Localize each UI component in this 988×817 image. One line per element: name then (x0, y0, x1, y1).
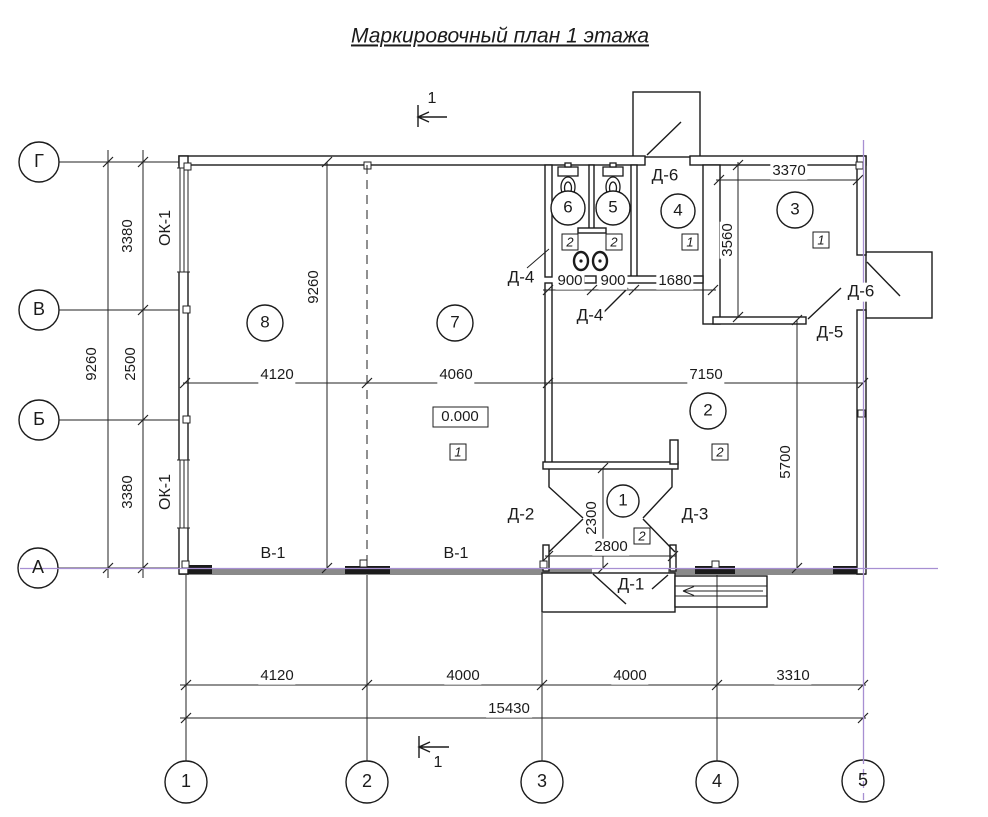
section-mark-label-top: 1 (428, 90, 437, 108)
room-number-5: 5 (608, 199, 617, 218)
door-leaves (549, 122, 900, 604)
dim-wc-1680: 1680 (656, 273, 693, 290)
floor-type-room7: 1 (450, 444, 467, 461)
wall-wc-front (584, 276, 596, 283)
drawing-title: Маркировочный план 1 этажа (351, 24, 649, 47)
dim-left-3380-top: 3380 (120, 217, 137, 254)
wall-stub (670, 440, 678, 464)
window-label-v1-right: В-1 (443, 545, 470, 563)
wall-top (179, 156, 645, 165)
axis-col-1: 1 (181, 772, 191, 792)
door-label-d6-right: Д-6 (847, 283, 876, 302)
axis-row-v: В (33, 300, 45, 320)
axis-row-b: Б (33, 410, 45, 430)
dim-bottom-3310: 3310 (774, 668, 811, 685)
dim-inner-7150: 7150 (687, 367, 724, 384)
dim-inner-4120: 4120 (258, 367, 295, 384)
section-mark-label-bottom: 1 (434, 754, 443, 772)
door-label-d3: Д-3 (681, 506, 710, 525)
porch-top (633, 92, 700, 157)
dim-inner-4060: 4060 (437, 367, 474, 384)
wall-right (857, 156, 866, 255)
floor-plan-sheet: Маркировочный план 1 этажаГВБА1234533802… (0, 0, 988, 817)
dim-bottom-15430: 15430 (486, 701, 532, 718)
dim-wc-900-right: 900 (598, 273, 627, 290)
dim-bottom-4000-right: 4000 (611, 668, 648, 685)
wall-right (857, 310, 866, 574)
dim-room2-5700: 5700 (778, 443, 795, 480)
wall-room3-bottom (713, 317, 806, 324)
section-mark-top (418, 105, 447, 127)
axis-col-2: 2 (362, 772, 372, 792)
door-label-d2: Д-2 (507, 506, 536, 525)
wall-tambour-top (543, 462, 678, 469)
wall-wc-left (545, 165, 552, 277)
dim-left-2500: 2500 (123, 345, 140, 382)
window-label-ok1-top: ОК-1 (157, 209, 175, 247)
door-label-d5: Д-5 (816, 324, 845, 343)
dim-left-9260: 9260 (84, 345, 101, 382)
wall-hall-divider (545, 283, 552, 465)
floor-type-room3: 1 (813, 232, 830, 249)
wall-room4-room3 (703, 165, 720, 324)
axis-row-g: Г (34, 152, 44, 172)
dimension-ticks (103, 157, 868, 723)
room-number-2: 2 (703, 402, 712, 421)
window-ok1-top (177, 168, 190, 272)
dim-bottom-4120: 4120 (258, 668, 295, 685)
level-mark: 0.000 (439, 409, 481, 426)
dim-room3-3370: 3370 (770, 163, 807, 180)
door-label-d4-left: Д-4 (507, 269, 536, 288)
wall-wc-partition (589, 165, 594, 231)
floor-type-wc6: 2 (562, 234, 579, 251)
porch-right (866, 252, 932, 318)
floor-type-room2: 2 (712, 444, 729, 461)
room-number-4: 4 (673, 202, 682, 221)
floor-drain-icon (574, 252, 607, 270)
room-number-3: 3 (790, 201, 799, 220)
floor-plan-canvas (0, 0, 988, 817)
wall-wc-room4 (631, 165, 637, 277)
room-number-6: 6 (563, 199, 572, 218)
dim-bottom-4000-left: 4000 (444, 668, 481, 685)
dim-inner-9260: 9260 (306, 268, 323, 305)
room-number-8: 8 (260, 314, 269, 333)
axis-col-4: 4 (712, 772, 722, 792)
floor-type-room4: 1 (682, 234, 699, 251)
door-label-d4-bottom: Д-4 (576, 307, 605, 326)
porch-entrance (542, 573, 675, 612)
door-label-d1: Д-1 (617, 576, 646, 595)
dim-tambour-2800: 2800 (592, 539, 629, 556)
axis-col-3: 3 (537, 772, 547, 792)
dim-wc-900-left: 900 (555, 273, 584, 290)
door-label-d6-top: Д-6 (651, 167, 680, 186)
axis-row-a: А (32, 558, 44, 578)
window-label-v1-left: В-1 (260, 545, 287, 563)
dim-left-3380-bottom: 3380 (120, 473, 137, 510)
dim-room3-3560: 3560 (720, 221, 737, 258)
room-number-1: 1 (618, 492, 627, 511)
axis-col-5: 5 (858, 771, 868, 791)
wall-wc-partition-cap (578, 228, 606, 233)
floor-type-wc5: 2 (606, 234, 623, 251)
window-label-ok1-bottom: ОК-1 (157, 473, 175, 511)
floor-type-room1: 2 (634, 528, 651, 545)
room-number-7: 7 (450, 314, 459, 333)
window-ok1-bottom (177, 460, 190, 528)
dim-tambour-2300: 2300 (584, 499, 601, 536)
